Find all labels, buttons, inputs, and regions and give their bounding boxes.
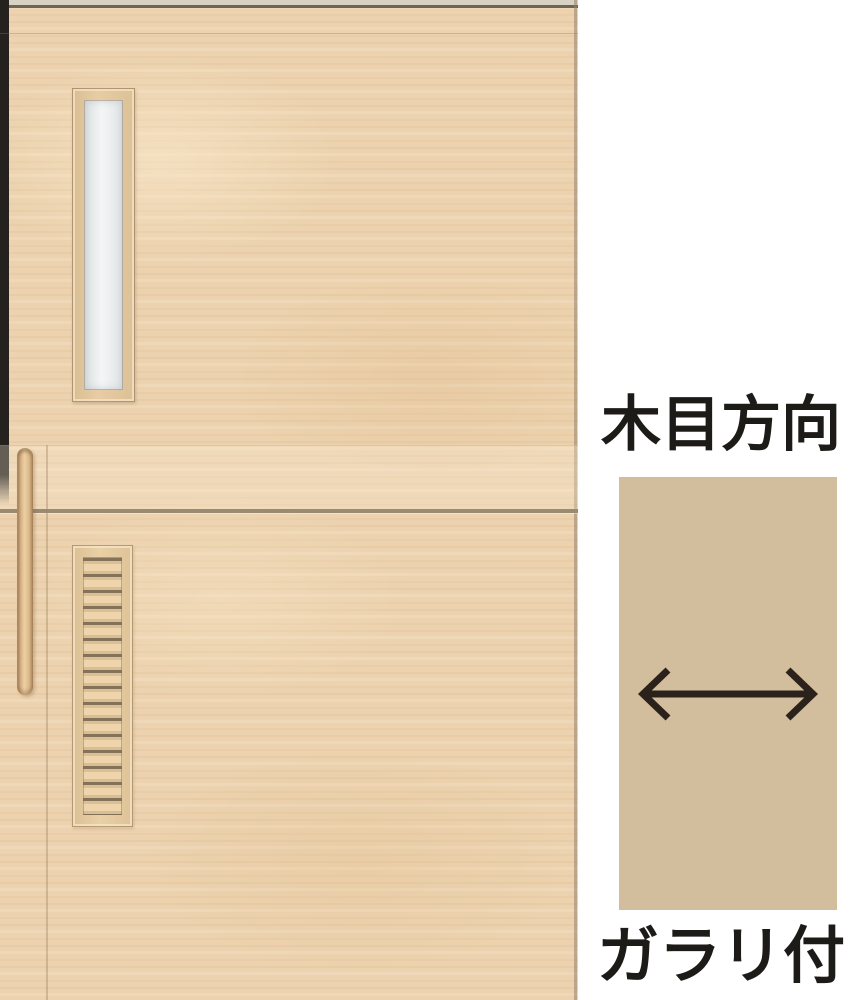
louver-note-label: ガラリ付 — [592, 922, 850, 990]
catalog-figure: 木目方向 ガラリ付 — [0, 0, 850, 1000]
grain-direction-arrow-icon — [638, 666, 818, 722]
frosted-glass-pane — [84, 100, 123, 390]
door-top-edge-shadow — [0, 5, 578, 8]
door-top-rail-seam — [0, 33, 578, 34]
door-handle-bar — [17, 448, 33, 695]
door-mid-seam — [0, 509, 578, 513]
door-photo — [0, 0, 578, 1000]
door-stile-seam — [46, 445, 48, 1000]
door-left-edge-shadow — [0, 0, 9, 505]
slit-glass-window — [72, 88, 135, 402]
door-mid-rail-band — [0, 445, 578, 511]
wood-grain-swatch — [619, 477, 837, 910]
louver-slats — [83, 557, 122, 815]
grain-direction-label: 木目方向 — [592, 392, 850, 458]
louver-vent-panel — [72, 545, 133, 827]
